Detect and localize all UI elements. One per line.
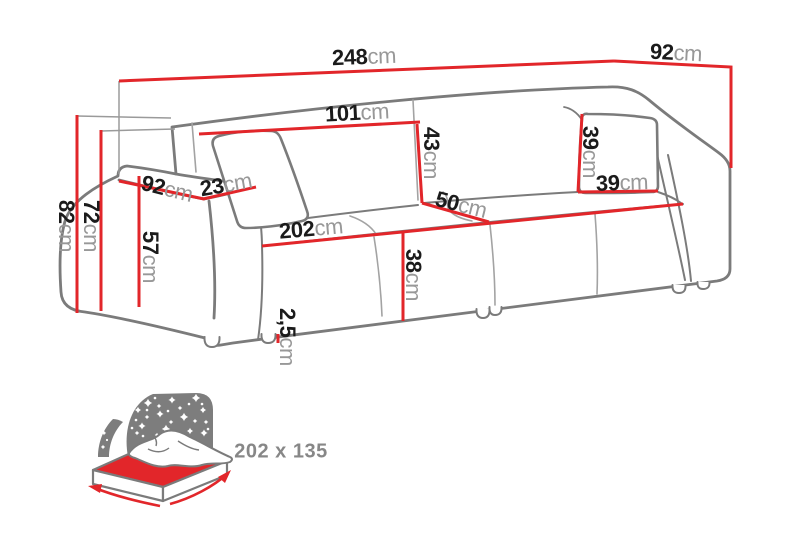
sofa-dimension-diagram: 248cm 92cm 101cm 43cm 50cm 202cm 38cm 57… — [0, 0, 800, 533]
sleeping-area-size: 202 x 135 — [234, 441, 327, 464]
dim-label-back-height: 72cm — [78, 200, 104, 252]
dim-label-overall-depth: 92cm — [649, 39, 702, 68]
bed-width-arrowhead — [88, 484, 102, 493]
dim-label-seat-height: 38cm — [400, 249, 426, 301]
dim-label-leg-height: 2,5cm — [274, 308, 300, 366]
sofa-line-drawing — [60, 87, 730, 347]
dim-label-backrest-width: 101cm — [324, 98, 389, 127]
dim-label-armrest-front-height: 57cm — [137, 231, 163, 283]
dim-label-total-height: 82cm — [53, 200, 79, 252]
dim-label-seat-width: 202cm — [278, 213, 344, 244]
dim-label-pillow-width: 39cm — [595, 169, 648, 197]
bed-night-sky-icon — [88, 393, 232, 506]
dim-label-overall-width: 248cm — [332, 43, 397, 71]
dimension-guide-lines — [77, 81, 175, 174]
dim-label-backrest-height: 43cm — [418, 127, 444, 179]
